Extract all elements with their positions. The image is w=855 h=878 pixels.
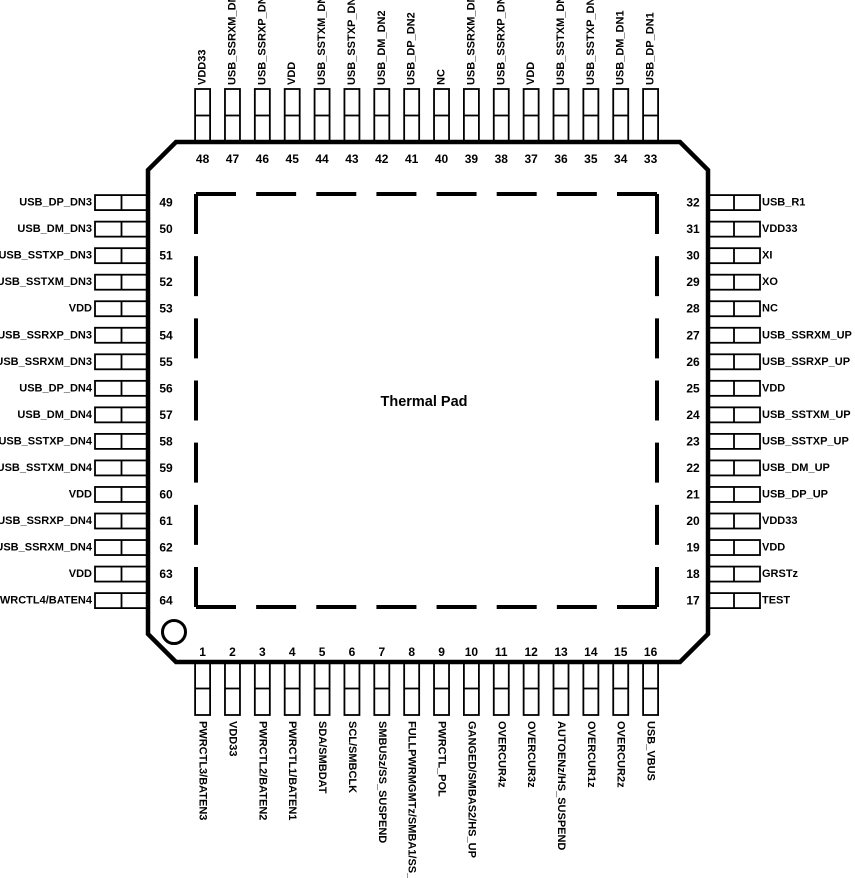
pin-label: USB_DM_DN2: [376, 10, 388, 85]
pin-label: VDD: [69, 303, 92, 315]
pin-47-pad: [225, 89, 240, 142]
pin-5-pad: [315, 662, 330, 715]
pin-label: OVERCUR4z: [495, 721, 507, 788]
pin-label: USB_SSRXM_DN3: [0, 356, 92, 368]
pin-number: 45: [286, 152, 300, 166]
pin-63-pad: [95, 567, 148, 582]
pin-43-pad: [344, 89, 359, 142]
pin-label: USB_SSTXP_UP: [762, 435, 849, 447]
pin-8-pad: [404, 662, 419, 715]
pin-label: SDA/SMBDAT: [316, 721, 328, 794]
pin-28-pad: [708, 301, 760, 316]
pin-48-pad: [195, 89, 210, 142]
pin-number: 5: [319, 645, 326, 659]
pin-10-pad: [464, 662, 479, 715]
pin-label: NC: [436, 69, 448, 85]
pin-16-pad: [643, 662, 658, 715]
pin-number: 42: [375, 152, 389, 166]
pin-number: 61: [159, 514, 173, 528]
pin-number: 4: [289, 645, 296, 659]
pin-number: 23: [686, 434, 700, 448]
pin-26-pad: [708, 354, 760, 369]
pin-number: 41: [405, 152, 419, 166]
pin-number: 22: [686, 461, 700, 475]
pin-label: OVERCUR3z: [525, 721, 537, 788]
pin-number: 27: [686, 328, 700, 342]
pin-label: VDD33: [197, 50, 209, 85]
pin-label: USB_R1: [762, 197, 805, 209]
pin-number: 38: [495, 152, 509, 166]
pin-number: 2: [229, 645, 236, 659]
pin-label: USB_DM_DN4: [17, 409, 92, 421]
pin-label: USB_DP_DN1: [645, 12, 657, 85]
pin-number: 47: [226, 152, 240, 166]
pin-label: USB_DP_DN2: [406, 12, 418, 85]
pin-15-pad: [613, 662, 628, 715]
pin-36-pad: [554, 89, 569, 142]
pin-58-pad: [95, 434, 148, 449]
pin-38-pad: [494, 89, 509, 142]
pin-number: 46: [256, 152, 270, 166]
pin-56-pad: [95, 381, 148, 396]
pin-label: USB_SSTXP_DN4: [0, 435, 93, 447]
pin-number: 7: [378, 645, 385, 659]
pin-label: VDD: [525, 62, 537, 85]
pin-label: USB_SSRXP_DN3: [0, 329, 92, 341]
pin-number: 56: [159, 381, 173, 395]
pinout-canvas: Thermal Pad 48VDD3347USB_SSRXM_DN246USB_…: [0, 0, 855, 878]
pin-label: XI: [762, 250, 772, 262]
pin-number: 63: [159, 567, 173, 581]
pin-label: GRSTz: [762, 568, 799, 580]
pin-label: VDD33: [762, 223, 797, 235]
pin-number: 60: [159, 487, 173, 501]
pin-number: 44: [315, 152, 329, 166]
pin-number: 36: [554, 152, 568, 166]
pin-label: OVERCUR1z: [585, 721, 597, 788]
pin-number: 9: [438, 645, 445, 659]
pin-27-pad: [708, 328, 760, 343]
pin-45-pad: [285, 89, 300, 142]
pin-number: 33: [644, 152, 658, 166]
pin-label: PWRCTL1/BATEN1: [286, 721, 298, 820]
pin-number: 35: [584, 152, 598, 166]
pin-label: TEST: [762, 595, 790, 607]
pin-number: 26: [686, 355, 700, 369]
pin-label: VDD: [69, 488, 92, 500]
pin-number: 3: [259, 645, 266, 659]
pin1-indicator-circle: [163, 621, 186, 644]
pin-number: 31: [686, 222, 700, 236]
pin-label: OVERCUR2z: [615, 721, 627, 788]
pin-number: 40: [435, 152, 449, 166]
pin-label: USB_SSRXP_UP: [762, 356, 850, 368]
pin-label: USB_SSRXP_DN1: [495, 0, 507, 85]
pin-24-pad: [708, 407, 760, 422]
pin-12-pad: [524, 662, 539, 715]
pin-30-pad: [708, 248, 760, 263]
pin-3-pad: [255, 662, 270, 715]
pin-number: 11: [495, 645, 508, 659]
pin-35-pad: [583, 89, 598, 142]
pin-number: 57: [159, 408, 173, 422]
pin-20-pad: [708, 513, 760, 528]
pin-number: 49: [159, 196, 173, 210]
pin-number: 62: [159, 541, 173, 555]
pin-13-pad: [554, 662, 569, 715]
pin-31-pad: [708, 222, 760, 237]
pin-label: USB_SSTXM_DN3: [0, 276, 92, 288]
pin-label: VDD33: [762, 515, 797, 527]
pin-41-pad: [404, 89, 419, 142]
pin-label: SCL/SMBCLK: [346, 721, 358, 793]
pin-number: 21: [686, 487, 700, 501]
pin-label: USB_DP_DN3: [19, 197, 92, 209]
pin-label: USB_SSTXP_DN2: [346, 0, 358, 85]
pin-label: AUTOENz/HS_SUSPEND: [555, 721, 567, 850]
pin-4-pad: [285, 662, 300, 715]
pin-23-pad: [708, 434, 760, 449]
pin-label: VDD33: [226, 721, 238, 756]
pin-number: 43: [345, 152, 359, 166]
pin-52-pad: [95, 275, 148, 290]
pin-number: 30: [686, 249, 700, 263]
pin-61-pad: [95, 513, 148, 528]
pin-number: 16: [644, 645, 658, 659]
pin-label: USB_DP_DN4: [19, 382, 93, 394]
pin-number: 19: [686, 541, 700, 555]
pin-53-pad: [95, 301, 148, 316]
pin-number: 14: [584, 645, 598, 659]
pin-label: VDD: [286, 62, 298, 85]
pin-14-pad: [583, 662, 598, 715]
pin-label: FULLPWRMGMTz/SMBA1/SS_UP: [406, 721, 418, 878]
pin-label: USB_SSTXP_DN1: [585, 0, 597, 85]
pin-label: USB_DM_UP: [762, 462, 830, 474]
pin-2-pad: [225, 662, 240, 715]
pin-label: USB_SSRXM_DN2: [226, 0, 238, 85]
pin-64-pad: [95, 593, 148, 608]
pin-54-pad: [95, 328, 148, 343]
pin-39-pad: [464, 89, 479, 142]
pin-label: XO: [762, 276, 778, 288]
pin-label: USB_VBUS: [645, 721, 657, 781]
pin-57-pad: [95, 407, 148, 422]
pin-number: 55: [159, 355, 173, 369]
pin-19-pad: [708, 540, 760, 555]
pin-59-pad: [95, 460, 148, 475]
pin-label: USB_DM_DN1: [615, 10, 627, 85]
pin-62-pad: [95, 540, 148, 555]
pin-label: PWRCTL4/BATEN4: [0, 595, 93, 607]
pin-number: 25: [686, 381, 700, 395]
pin-label: USB_DM_DN3: [17, 223, 92, 235]
thermal-pad-label: Thermal Pad: [380, 394, 467, 410]
pin-number: 53: [159, 302, 173, 316]
pin-44-pad: [315, 89, 330, 142]
pin-label: USB_SSTXM_DN4: [0, 462, 93, 474]
pin-number: 58: [159, 434, 173, 448]
pin-label: USB_SSTXM_DN2: [316, 0, 328, 85]
pin-33-pad: [643, 89, 658, 142]
pin-42-pad: [374, 89, 389, 142]
pin-29-pad: [708, 275, 760, 290]
pin-55-pad: [95, 354, 148, 369]
pin-number: 37: [524, 152, 538, 166]
pin-32-pad: [708, 195, 760, 210]
pin-21-pad: [708, 487, 760, 502]
pin-25-pad: [708, 381, 760, 396]
pin-46-pad: [255, 89, 270, 142]
pin-number: 64: [159, 594, 173, 608]
pin-number: 24: [686, 408, 700, 422]
pin-1-pad: [195, 662, 210, 715]
pin-51-pad: [95, 248, 148, 263]
pin-number: 17: [686, 594, 700, 608]
pin-18-pad: [708, 567, 760, 582]
pin-label: VDD: [69, 568, 92, 580]
pin-number: 28: [686, 302, 700, 316]
pin-label: PWRCTL2/BATEN2: [256, 721, 268, 820]
pin-number: 51: [159, 249, 173, 263]
pin-17-pad: [708, 593, 760, 608]
pin-label: PWRCTL3/BATEN3: [197, 721, 209, 820]
pin-11-pad: [494, 662, 509, 715]
pin-label: USB_SSRXM_UP: [762, 329, 852, 341]
pin-label: NC: [762, 303, 778, 315]
pin-number: 54: [159, 328, 173, 342]
pin-number: 6: [349, 645, 356, 659]
pin-number: 15: [614, 645, 628, 659]
pin-number: 39: [465, 152, 479, 166]
pin-label: VDD: [762, 382, 785, 394]
pin-40-pad: [434, 89, 449, 142]
pin-22-pad: [708, 460, 760, 475]
pin-number: 59: [159, 461, 173, 475]
pin-number: 29: [686, 275, 700, 289]
pin-number: 8: [408, 645, 415, 659]
pin-label: USB_SSTXM_DN1: [555, 0, 567, 85]
pin-label: USB_SSTXP_DN3: [0, 250, 92, 262]
pin-label: USB_SSRXM_DN1: [465, 0, 477, 85]
pin-label: SMBUSz/SS_SUSPEND: [376, 721, 388, 843]
pin-label: USB_SSTXM_UP: [762, 409, 851, 421]
pin-60-pad: [95, 487, 148, 502]
pin-number: 34: [614, 152, 628, 166]
pin-49-pad: [95, 195, 148, 210]
pin-label: USB_SSRXM_DN4: [0, 542, 93, 554]
pin-label: GANGED/SMBAS2/HS_UP: [465, 721, 477, 858]
pin-number: 13: [554, 645, 568, 659]
pin-number: 12: [524, 645, 538, 659]
pin-number: 50: [159, 222, 173, 236]
pin-7-pad: [374, 662, 389, 715]
pin-37-pad: [524, 89, 539, 142]
pin-number: 20: [686, 514, 700, 528]
pin-number: 18: [686, 567, 700, 581]
pin-number: 32: [686, 196, 700, 210]
pin-34-pad: [613, 89, 628, 142]
pin-9-pad: [434, 662, 449, 715]
pin-label: PWRCTL_POL: [436, 721, 448, 797]
pin-6-pad: [344, 662, 359, 715]
pin-label: USB_DP_UP: [762, 488, 828, 500]
pin-number: 1: [199, 645, 206, 659]
pin-label: USB_SSRXP_DN4: [0, 515, 93, 527]
pin-number: 48: [196, 152, 210, 166]
pin-label: USB_SSRXP_DN2: [256, 0, 268, 85]
pin-number: 52: [159, 275, 173, 289]
pin-50-pad: [95, 222, 148, 237]
pin-number: 10: [465, 645, 479, 659]
pin-label: VDD: [762, 542, 785, 554]
chip-pinout-diagram: Thermal Pad 48VDD3347USB_SSRXM_DN246USB_…: [0, 0, 855, 878]
